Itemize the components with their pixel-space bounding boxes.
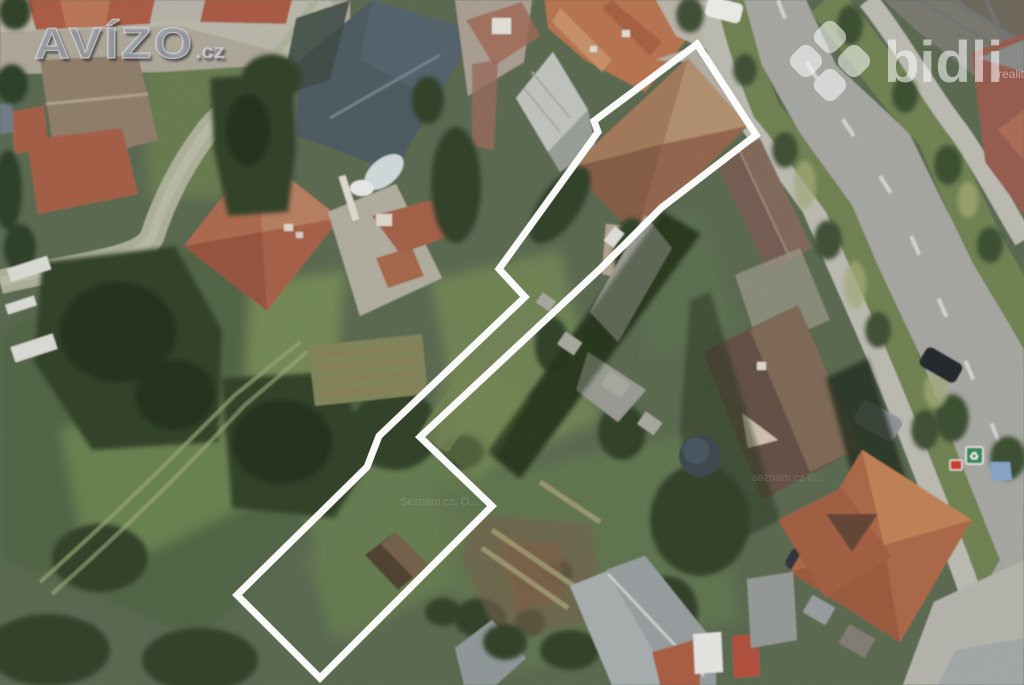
svg-text:bidli: bidli	[884, 30, 1003, 95]
svg-text:Seznam.cz, O...: Seznam.cz, O...	[400, 496, 478, 508]
svg-text:seznam.cz ©...: seznam.cz ©...	[752, 472, 825, 484]
svg-text:reality: reality	[998, 67, 1024, 81]
